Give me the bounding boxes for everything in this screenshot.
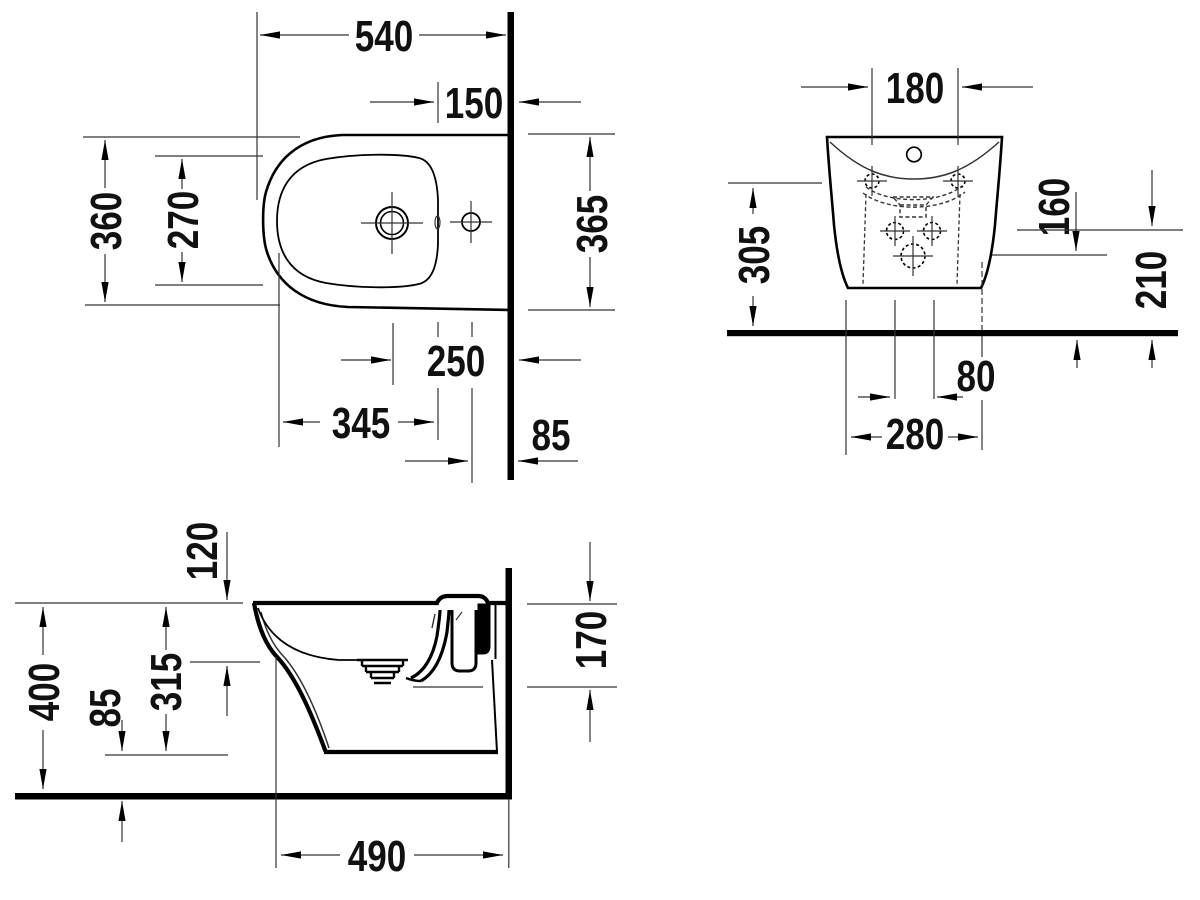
drain-hole bbox=[361, 192, 423, 254]
dim-plan-width-at-wall: 365 bbox=[528, 134, 617, 310]
dim-270-label: 270 bbox=[159, 191, 208, 250]
dim-front-mid-spacing: 80 bbox=[858, 352, 996, 401]
dim-180-label: 180 bbox=[886, 64, 945, 113]
dim-side-base-clearance: 85 bbox=[81, 689, 130, 843]
dim-280-label: 280 bbox=[886, 410, 945, 459]
tap-hole bbox=[450, 201, 492, 243]
dim-315-label: 315 bbox=[142, 653, 191, 712]
front-view: 180 305 160 210 bbox=[727, 64, 1183, 459]
floor-line-side bbox=[15, 793, 512, 800]
dim-305-label: 305 bbox=[730, 226, 779, 285]
technical-drawing-page: 540 150 360 270 bbox=[0, 0, 1200, 900]
bidet-technical-drawing: 540 150 360 270 bbox=[0, 0, 1200, 900]
overflow-hole bbox=[907, 147, 922, 162]
dim-side-outlet-height: 170 bbox=[527, 542, 617, 742]
mounting-section bbox=[478, 604, 490, 654]
dim-150-label: 150 bbox=[445, 79, 504, 128]
dim-170-label: 170 bbox=[567, 611, 616, 670]
dim-210-label: 210 bbox=[1127, 251, 1176, 310]
dim-front-lower-hole-height: 160 bbox=[992, 178, 1107, 368]
dim-365-label: 365 bbox=[568, 195, 617, 254]
dim-400-label: 400 bbox=[20, 663, 69, 722]
dim-85-side-label: 85 bbox=[81, 689, 130, 728]
dim-85-plan-label: 85 bbox=[532, 411, 571, 460]
basin-hidden-lines bbox=[863, 186, 965, 284]
dim-front-tap-spacing: 180 bbox=[801, 64, 1033, 145]
dim-plan-rim-to-wall: 150 bbox=[370, 79, 581, 128]
dim-540-label: 540 bbox=[355, 12, 414, 61]
drain-steps bbox=[357, 660, 408, 683]
dim-side-body-height: 315 bbox=[105, 607, 228, 755]
dim-80-label: 80 bbox=[957, 352, 996, 401]
dim-120-label: 120 bbox=[178, 522, 227, 581]
plan-view: 540 150 360 270 bbox=[82, 12, 617, 483]
dim-plan-bowl-length: 345 bbox=[279, 253, 438, 448]
lower-hole bbox=[893, 236, 933, 276]
dim-plan-bowl-width: 270 bbox=[155, 156, 263, 285]
floor-line-front bbox=[727, 330, 1178, 336]
wall-line-side bbox=[506, 568, 513, 793]
dim-plan-drain-to-wall: 250 bbox=[341, 323, 581, 386]
bidet-side-profile bbox=[253, 596, 506, 752]
dim-360-label: 360 bbox=[82, 192, 131, 251]
dim-160-label: 160 bbox=[1030, 178, 1079, 237]
wall-line-plan bbox=[508, 12, 515, 480]
dim-side-overall-height: 400 bbox=[20, 607, 69, 789]
inner-bowl-outline bbox=[277, 155, 438, 288]
dim-front-upper-holes-height: 305 bbox=[728, 183, 822, 326]
dim-front-base-width: 280 bbox=[851, 410, 978, 459]
dim-250-label: 250 bbox=[427, 337, 486, 386]
dim-345-label: 345 bbox=[332, 399, 391, 448]
dim-490-label: 490 bbox=[348, 832, 407, 881]
side-view: 400 315 85 120 170 bbox=[15, 522, 617, 881]
dim-side-body-depth: 490 bbox=[276, 657, 503, 881]
